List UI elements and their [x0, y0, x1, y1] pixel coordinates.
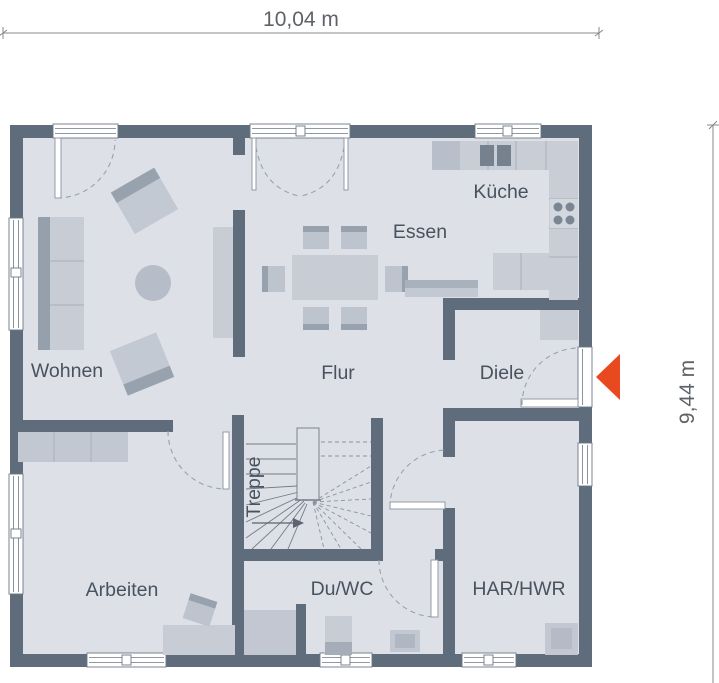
room-label-duwc: Du/WC — [311, 578, 374, 600]
wall-har-left-lower — [443, 508, 455, 667]
door-frame-right — [344, 138, 348, 190]
toilet-cistern — [325, 642, 352, 655]
room-label-diele: Diele — [480, 362, 524, 384]
door-leaf — [55, 138, 61, 198]
dining-chair — [341, 226, 367, 249]
wall-stub-top — [233, 138, 245, 155]
window-wohnen-left — [9, 218, 23, 330]
dining-chair — [341, 307, 367, 330]
entry-closet — [540, 310, 578, 340]
window-duwc-bottom — [320, 653, 372, 667]
burner-icon — [554, 203, 563, 212]
door-leaf — [431, 560, 438, 617]
wall-diele-har — [443, 408, 580, 421]
wall-diele-left-upper — [443, 310, 455, 360]
dimension-line-right — [707, 121, 719, 683]
door-leaf — [223, 432, 229, 489]
kitchen-counter-top — [460, 141, 578, 170]
bookshelf — [18, 432, 128, 462]
shower — [244, 610, 296, 655]
door-leaf — [521, 399, 578, 407]
dining-chair — [385, 266, 408, 292]
window-handle-icon — [341, 655, 350, 665]
sink-basin — [480, 145, 494, 166]
window-kueche-top — [475, 124, 541, 138]
door-leaf — [390, 502, 445, 509]
washbasin — [390, 630, 420, 652]
wall-har-left-upper — [443, 421, 455, 457]
toilet — [325, 616, 352, 655]
window-handle-icon — [11, 529, 21, 538]
room-label-arbeiten: Arbeiten — [86, 579, 159, 601]
cooktop — [550, 199, 578, 228]
wall-wohnen-arbeiten — [10, 420, 173, 432]
wall-wohnen-flur — [233, 210, 245, 357]
wall-shower-partition — [296, 604, 306, 655]
dining-table — [292, 255, 378, 300]
room-label-treppe: Treppe — [243, 456, 265, 517]
window-arbeiten-bottom — [87, 653, 166, 667]
floor — [23, 138, 579, 654]
room-label-harhwr: HAR/HWR — [472, 578, 565, 600]
door-frame-left — [252, 138, 256, 190]
room-label-essen: Essen — [393, 221, 447, 243]
burner-icon — [566, 216, 575, 225]
dining-chair — [303, 307, 329, 330]
sofa-backrest — [38, 217, 50, 350]
burner-icon — [554, 216, 563, 225]
room-label-kueche: Küche — [473, 181, 528, 203]
burner-icon — [566, 203, 575, 212]
kitchen-counter-right — [549, 170, 578, 300]
fridge — [432, 141, 460, 170]
window-har-bottom — [462, 653, 516, 667]
window-handle-icon — [484, 655, 493, 665]
sideboard — [405, 280, 478, 297]
door-handle-icon — [296, 126, 305, 136]
wall-stair-corridor — [371, 418, 383, 549]
sofa — [50, 217, 84, 350]
entrance-arrow-icon — [596, 354, 620, 400]
window-handle-icon — [503, 126, 512, 136]
sink-basin — [497, 145, 511, 166]
coffee-table — [135, 265, 171, 301]
dimension-width-label: 10,04 m — [263, 8, 339, 31]
wall-stair-duwc — [244, 549, 383, 561]
dining-chair — [262, 266, 285, 292]
window-handle-icon — [122, 655, 131, 665]
window-handle-icon — [11, 268, 21, 277]
window-har-right — [578, 443, 592, 486]
washing-machine — [545, 623, 578, 655]
floor-plan-drawing: 10,04 m 9,44 m — [0, 0, 719, 683]
tv-sideboard — [213, 227, 233, 338]
window-arbeiten-left — [9, 474, 23, 594]
dining-chair — [303, 226, 329, 249]
dimension-height-label: 9,44 m — [676, 360, 699, 424]
room-label-wohnen: Wohnen — [31, 360, 103, 382]
stair-well — [297, 428, 319, 500]
floor-plan: 10,04 m 9,44 m — [0, 0, 719, 683]
desk — [163, 625, 235, 655]
wall-duwc-door-stub — [435, 549, 443, 561]
room-label-flur: Flur — [321, 362, 355, 384]
